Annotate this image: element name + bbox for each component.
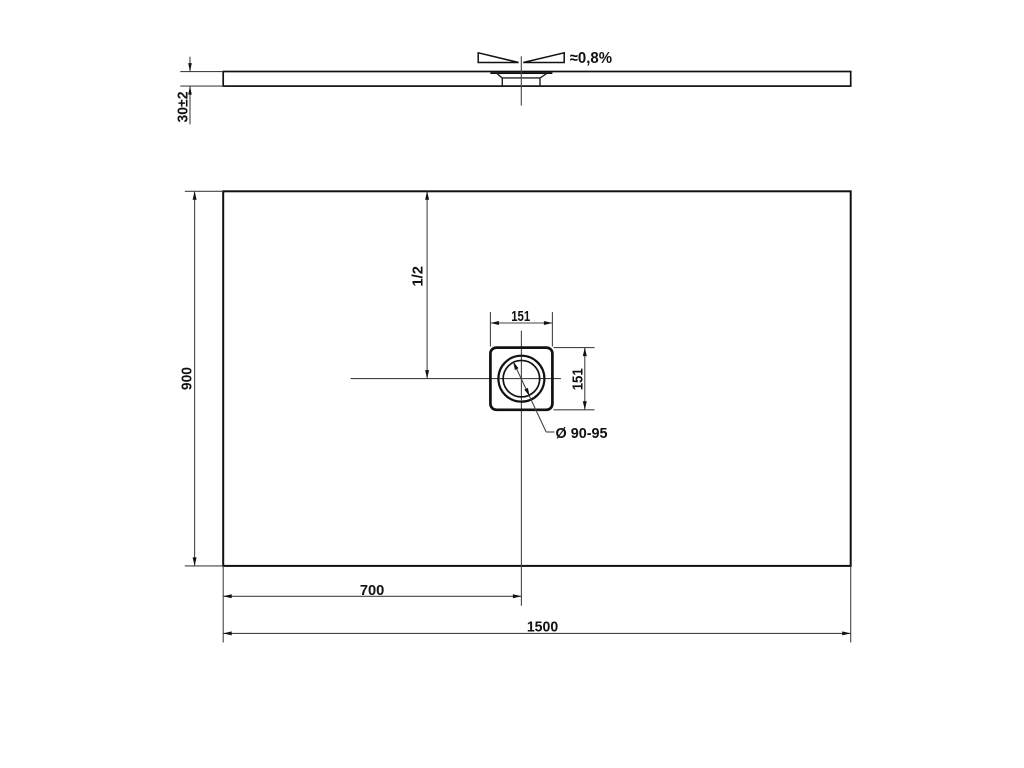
svg-text:1500: 1500 <box>527 618 558 635</box>
svg-text:700: 700 <box>360 582 385 599</box>
svg-text:151: 151 <box>511 308 530 325</box>
svg-text:≈0,8%: ≈0,8% <box>570 50 612 67</box>
svg-text:1/2: 1/2 <box>410 266 427 287</box>
svg-text:900: 900 <box>178 367 195 390</box>
svg-text:30±2: 30±2 <box>175 92 192 123</box>
svg-text:151: 151 <box>569 368 586 390</box>
svg-text:Ø 90-95: Ø 90-95 <box>556 425 608 442</box>
